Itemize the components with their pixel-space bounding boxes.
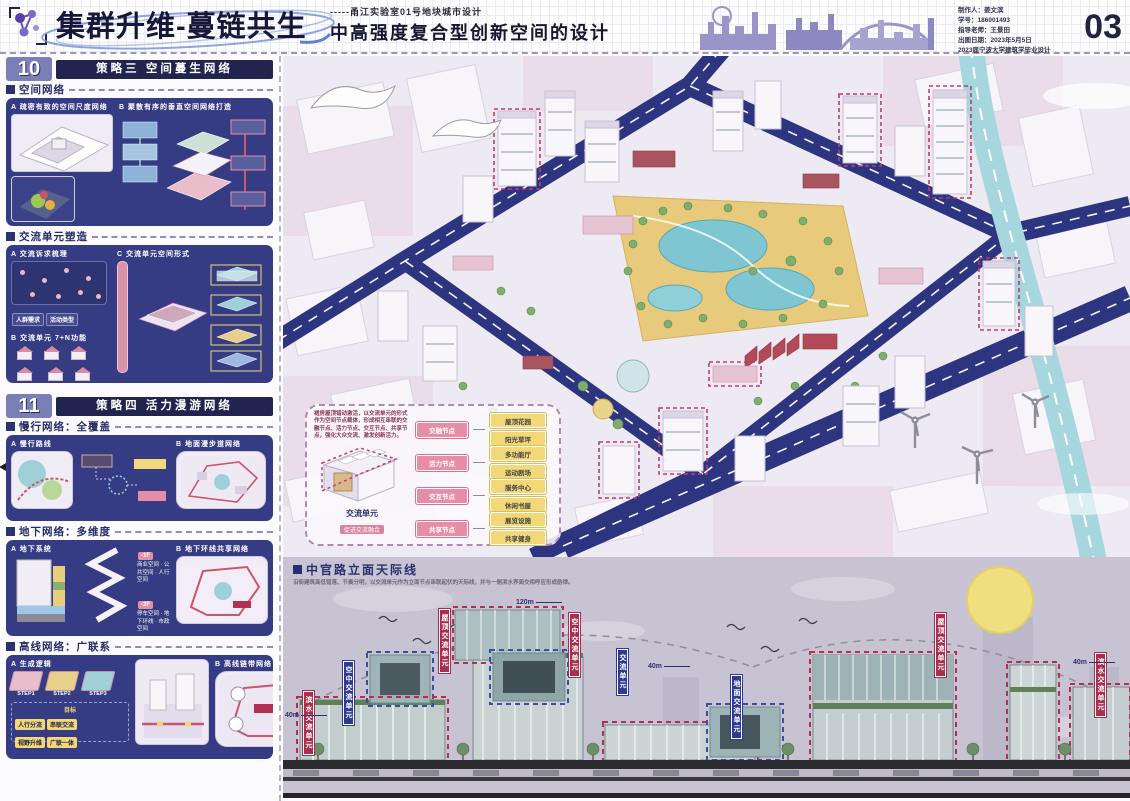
credit-date: 出图日期：2023年5月5日 [958, 36, 1078, 46]
elevation-header: 中官路立面天际线 沿街建筑高低错落、节奏分明，以交流单元作为立面节点串联起伏的天… [293, 561, 593, 588]
space-network-panel: A 疏密有致的空间尺度网络 [6, 98, 273, 226]
yellow-node: 展览设施 [490, 512, 546, 527]
elevation-banner: 空中交流单元 [343, 661, 354, 725]
highline-network-panel: A 生成逻辑 STEP1 STEP2 STEP3 [6, 655, 273, 759]
section-11-title: 策略四 活力漫游网络 [56, 397, 273, 416]
underground-network-panel: A 地下系统 -1F 商业空间 · 公共空间 [6, 540, 273, 636]
section-stack-diagram [11, 556, 71, 626]
dashed-rule [92, 236, 273, 238]
height-label-120m: 120m [516, 599, 562, 606]
credits-block: 制作人：姜文滨 学号：186001493 指导老师：王景田 出图日期：2023年… [958, 6, 1078, 56]
loop-map-thumbnail [176, 556, 268, 624]
walk-network-label: 慢行网络：全覆盖 [19, 419, 111, 434]
credit-advisor: 指导老师：王景田 [958, 26, 1078, 36]
dashed-rule [115, 426, 273, 428]
ground-path-map-thumbnail [176, 451, 266, 509]
subtitle-small: -----甬江实验室01号地块城市设计 [330, 5, 610, 18]
panel-b-title: B 交流单元 7+N功能 [11, 333, 111, 343]
node-tree: 交融节点 屋顶花园 阳光草坪 活力节点 多功能厅 运动剧场 交互节点 服务中心 … [416, 411, 552, 539]
yellow-node: 休闲书屋 [490, 497, 546, 512]
unit-label: 交流单元 [314, 508, 410, 519]
floor-tag-1f: -1F [138, 552, 153, 560]
elevation-banner: 交流单元 [617, 649, 628, 695]
floor-1f-items: 商业空间 · 公共空间 · 人行空间 [137, 562, 170, 585]
panel-c-title: C 交流单元空间形式 [117, 249, 268, 259]
floor-2f-items: 停车空间 · 地下环线 · 市政空间 [137, 611, 170, 634]
panel-b-title: B 高线链带网络 [215, 659, 273, 669]
subtitle-large: 中高强度复合型创新空间的设计 [330, 19, 610, 45]
underground-network-label: 地下网络：多维度 [19, 524, 111, 539]
walk-network-panel: A 慢行路线 [6, 435, 273, 521]
yellow-node: 阳光草坪 [490, 431, 546, 446]
unit-sublabel: 促进交流融合 [340, 525, 384, 534]
elevation-title: 中官路立面天际线 [306, 561, 418, 578]
street-elevation-section: 中官路立面天际线 沿街建筑高低错落、节奏分明，以交流单元作为立面节点串联起伏的天… [283, 557, 1130, 795]
yellow-node: 屋顶花园 [490, 413, 546, 428]
goal-box: 目标 人行分流串联交流 视野升维广联一体 [11, 702, 129, 742]
panel-b-title: B 地下环线共享网络 [176, 544, 268, 554]
scale-network-axon-thumbnail [11, 114, 113, 172]
space-network-label-row: 空间网络 [6, 83, 273, 96]
bullet-square-icon [6, 232, 15, 241]
bullet-square-icon [6, 422, 15, 431]
panel-a-title: A 慢行路线 [11, 439, 170, 449]
yellow-node: 共享健身 [490, 530, 546, 545]
walk-flow-diagram [78, 451, 170, 509]
elevation-drawing [283, 557, 1130, 795]
dashed-rule [115, 646, 273, 648]
communication-unit-panel: A 交流诉求梳理 人群需求活动类型 B 交流单元 7+N功能 [6, 245, 273, 383]
section-10-header: 10 策略三 空间蔓生网络 [4, 60, 275, 80]
floor-tag-2f: -2F [138, 601, 153, 609]
height-label-40m: 40m [285, 712, 327, 719]
communication-unit-callout: 裙房屋顶错动激活，以交流单元的形式作为空间节点载体，形成相互串联的交融节点、活力… [305, 404, 561, 546]
underground-network-label-row: 地下网络：多维度 [6, 525, 273, 538]
elevation-banner: 滨水交流单元 [303, 691, 314, 755]
step-1-chip: STEP1 [11, 671, 41, 697]
elevation-description: 沿街建筑高低错落、节奏分明，以交流单元作为立面节点串联起伏的天际线，并与一侧滨水… [293, 580, 593, 588]
elevation-banner: 空中交流单元 [569, 613, 580, 677]
unit-box-illustration [314, 443, 400, 505]
space-network-label: 空间网络 [19, 82, 65, 97]
poster-subtitle-block: -----甬江实验室01号地块城市设计 中高强度复合型创新空间的设计 [330, 5, 610, 45]
pink-node: 交互节点 [416, 488, 468, 504]
city-skyline-graphic [700, 4, 940, 50]
highline-network-label-row: 高线网络：广联系 [6, 640, 273, 653]
panel-a-title: A 地下系统 [11, 544, 71, 554]
credit-student-id: 学号：186001493 [958, 16, 1078, 26]
panel-a-title: A 交流诉求梳理 [11, 249, 111, 259]
seven-plus-n-icons [11, 345, 111, 383]
panel-b-title: B 地面漫步道网络 [176, 439, 268, 449]
yellow-node: 运动剧场 [490, 464, 546, 479]
dashed-rule [115, 531, 273, 533]
step-3-chip: STEP3 [83, 671, 113, 697]
dashed-rule [69, 89, 273, 91]
walk-network-label-row: 慢行网络：全覆盖 [6, 420, 273, 433]
height-label-40m: 40m [648, 663, 690, 670]
goal-title: 目标 [14, 705, 126, 714]
bullet-square-icon [6, 85, 15, 94]
page-number: 03 [1084, 8, 1122, 47]
needs-network-diagram [11, 261, 107, 305]
pink-tab-strip [117, 261, 128, 373]
height-label-40m: 40m [1073, 659, 1115, 666]
highline-axon-thumbnail [135, 659, 209, 745]
header-bar: 集群升维-蔓链共生 -----甬江实验室01号地块城市设计 中高强度复合型创新空… [0, 0, 1130, 54]
highline-network-label: 高线网络：广联系 [19, 639, 111, 654]
panel-b-title: B 聚散有序的垂直空间网络打造 [119, 102, 269, 112]
section-11-number: 11 [6, 394, 52, 418]
unit-shaping-label: 交流单元塑造 [19, 229, 88, 244]
unit-space-forms-diagram [133, 261, 263, 373]
bullet-square-icon [6, 642, 15, 651]
callout-note: 裙房屋顶错动激活，以交流单元的形式作为空间节点载体，形成相互串联的交融节点、活力… [314, 411, 410, 441]
highline-loop-map-thumbnail [215, 671, 273, 747]
unit-shaping-label-row: 交流单元塑造 [6, 230, 273, 243]
pink-node: 交融节点 [416, 422, 468, 438]
panel-a-title: A 疏密有致的空间尺度网络 [11, 102, 113, 112]
yellow-node: 多功能厅 [490, 446, 546, 461]
left-sidebar: 10 策略三 空间蔓生网络 空间网络 A 疏密有致的空间尺度网络 [0, 56, 281, 801]
step-2-chip: STEP2 [47, 671, 77, 697]
elevation-banner: 地面交流单元 [731, 675, 742, 739]
vertical-network-diagram [119, 114, 269, 218]
pink-node: 共享节点 [416, 521, 468, 537]
elevation-banner: 屋顶交流单元 [439, 609, 450, 673]
bullet-square-icon [293, 565, 302, 574]
density-map-thumbnail [11, 176, 75, 222]
walk-route-map-thumbnail [11, 451, 73, 509]
bottom-edge-bar [283, 793, 1130, 798]
section-11-header: 11 策略四 活力漫游网络 [4, 397, 275, 417]
poster-title-block: 集群升维-蔓链共生 [56, 4, 316, 50]
bullet-square-icon [6, 527, 15, 536]
section-10-title: 策略三 空间蔓生网络 [56, 60, 273, 79]
yellow-node: 服务中心 [490, 479, 546, 494]
poster-title: 集群升维-蔓链共生 [56, 4, 316, 50]
credit-author: 制作人：姜文滨 [958, 6, 1078, 16]
ramp-zigzag-diagram [77, 544, 131, 628]
pink-node: 活力节点 [416, 455, 468, 471]
poster-board: 集群升维-蔓链共生 -----甬江实验室01号地块城市设计 中高强度复合型创新空… [0, 0, 1130, 801]
credit-program: 2023届宁波大学建筑学毕业设计 [958, 46, 1078, 56]
panel-a-title: A 生成逻辑 [11, 659, 129, 669]
section-10-number: 10 [6, 57, 52, 81]
elevation-banner: 屋顶交流单元 [935, 613, 946, 677]
